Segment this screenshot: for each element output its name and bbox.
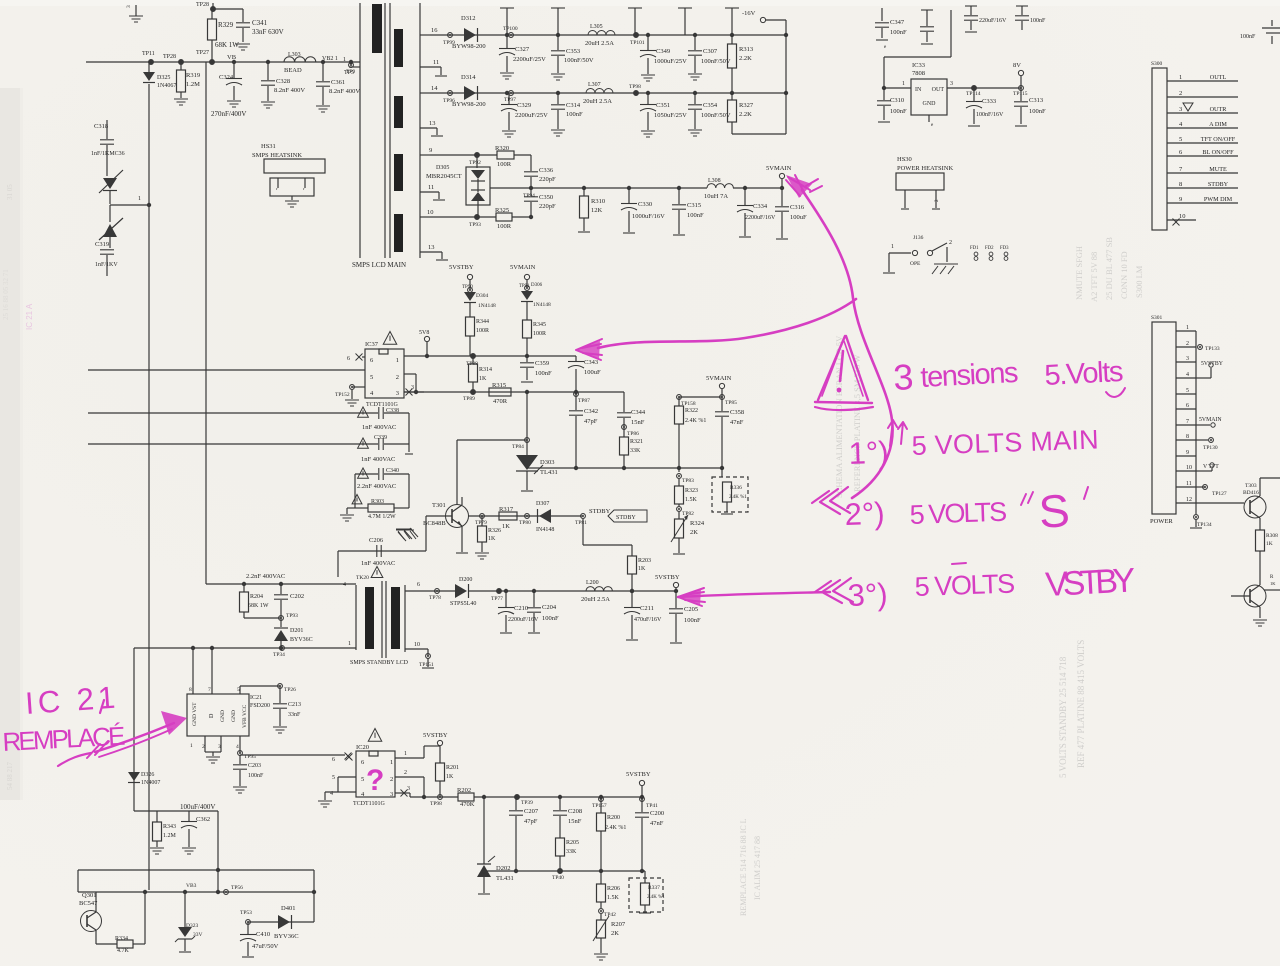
svg-text:100nF: 100nF xyxy=(1030,18,1046,24)
svg-text:12K: 12K xyxy=(591,207,603,214)
svg-text:1: 1 xyxy=(396,357,399,364)
svg-text:TP27: TP27 xyxy=(196,50,209,56)
svg-text:STDBY: STDBY xyxy=(589,508,611,515)
svg-text:100uF/400V: 100uF/400V xyxy=(180,803,215,811)
svg-text:SMPS STANDBY LCD: SMPS STANDBY LCD xyxy=(350,660,409,666)
svg-text:R308: R308 xyxy=(1266,533,1278,539)
svg-text:C313: C313 xyxy=(1029,97,1043,104)
svg-text:TL431: TL431 xyxy=(496,875,514,882)
svg-text:VB3: VB3 xyxy=(186,883,197,889)
svg-text:100R: 100R xyxy=(476,328,489,334)
svg-text:TP28: TP28 xyxy=(196,2,209,8)
svg-text:BC547: BC547 xyxy=(79,900,98,907)
svg-text:2: 2 xyxy=(396,374,399,381)
svg-text:10: 10 xyxy=(1179,213,1186,220)
svg-text:R315: R315 xyxy=(492,382,506,389)
svg-text:5: 5 xyxy=(332,775,335,781)
svg-text:VB: VB xyxy=(227,54,237,61)
svg-text:TP77: TP77 xyxy=(491,596,503,602)
svg-text:IC 21 A: IC 21 A xyxy=(25,303,34,330)
svg-text:6: 6 xyxy=(1186,403,1189,409)
svg-text:R337: R337 xyxy=(648,885,660,891)
svg-text:11: 11 xyxy=(1186,481,1192,487)
svg-text:S300 LM: S300 LM xyxy=(1134,265,1144,298)
svg-text:220uF/16V: 220uF/16V xyxy=(979,18,1007,24)
svg-text:2.4K %1: 2.4K %1 xyxy=(647,895,665,900)
svg-text:C359: C359 xyxy=(535,360,549,367)
svg-text:BEAD: BEAD xyxy=(284,67,302,74)
svg-text:R325: R325 xyxy=(495,207,509,214)
svg-text:16: 16 xyxy=(431,27,438,34)
svg-text:100nF/50V: 100nF/50V xyxy=(701,58,731,65)
svg-text:L307: L307 xyxy=(588,82,601,88)
svg-text:?: ? xyxy=(366,764,384,797)
svg-text:R310: R310 xyxy=(591,198,605,205)
svg-text:7: 7 xyxy=(1186,419,1189,425)
svg-text:1: 1 xyxy=(138,196,141,202)
svg-text:TP93: TP93 xyxy=(469,222,481,228)
svg-text:1.2M: 1.2M xyxy=(163,833,177,839)
svg-text:R319: R319 xyxy=(186,72,200,79)
svg-text:C343: C343 xyxy=(584,359,598,366)
svg-text:tensions: tensions xyxy=(920,357,1022,394)
svg-text:R345: R345 xyxy=(533,322,546,328)
svg-text:A DIM: A DIM xyxy=(1209,121,1227,128)
svg-text:8.2nF 400V: 8.2nF 400V xyxy=(274,87,305,94)
svg-text:TP40: TP40 xyxy=(552,875,564,881)
svg-text:3: 3 xyxy=(950,81,953,87)
svg-text:2K: 2K xyxy=(690,529,698,536)
svg-text:2.4K %1: 2.4K %1 xyxy=(729,495,747,500)
svg-text:2°): 2°) xyxy=(844,496,885,532)
svg-text:R204: R204 xyxy=(250,594,263,600)
svg-text:TP151: TP151 xyxy=(419,662,434,668)
svg-text:1N4007: 1N4007 xyxy=(141,780,160,786)
svg-text:1K: 1K xyxy=(1266,541,1273,547)
svg-text:R206: R206 xyxy=(607,886,620,892)
svg-text:3: 3 xyxy=(396,390,399,397)
svg-text:1: 1 xyxy=(404,751,407,757)
svg-text:31 05: 31 05 xyxy=(6,184,14,200)
svg-text:C329: C329 xyxy=(517,102,531,109)
svg-text:TP157: TP157 xyxy=(592,803,607,809)
svg-text:C202: C202 xyxy=(290,593,304,600)
svg-text:GND: GND xyxy=(231,710,237,722)
svg-text:C330: C330 xyxy=(638,201,652,208)
svg-text:TP89: TP89 xyxy=(463,396,475,402)
svg-text:TP83: TP83 xyxy=(682,478,694,484)
svg-text:C339: C339 xyxy=(374,435,387,441)
svg-text:C349: C349 xyxy=(656,48,670,55)
svg-text:TP101: TP101 xyxy=(630,40,645,46)
svg-text:5 VOLTS STANDBY 25 514 718: 5 VOLTS STANDBY 25 514 718 xyxy=(1058,656,1068,778)
svg-text:1nF 400VAC: 1nF 400VAC xyxy=(361,560,395,567)
svg-text:GND VST: GND VST xyxy=(192,702,198,726)
svg-text:TP91: TP91 xyxy=(519,284,530,289)
svg-text:BYW98-200: BYW98-200 xyxy=(452,43,486,50)
svg-text:C203: C203 xyxy=(248,763,261,769)
svg-text:4.7M 1/2W: 4.7M 1/2W xyxy=(368,514,396,520)
svg-text:BD416: BD416 xyxy=(1243,490,1259,496)
svg-text:7808: 7808 xyxy=(912,70,925,77)
svg-text:220pF: 220pF xyxy=(539,203,556,210)
svg-text:TL431: TL431 xyxy=(540,469,558,476)
svg-text:R313: R313 xyxy=(739,46,753,53)
svg-text:R201: R201 xyxy=(446,765,459,771)
svg-text:8: 8 xyxy=(189,687,192,693)
svg-text:C208: C208 xyxy=(568,808,582,815)
svg-text:C200: C200 xyxy=(650,810,664,817)
svg-text:1: 1 xyxy=(348,641,351,647)
svg-text:TP130: TP130 xyxy=(1203,445,1218,451)
svg-text:IC 21: IC 21 xyxy=(24,680,120,721)
svg-text:3: 3 xyxy=(390,791,393,798)
svg-text:100R: 100R xyxy=(533,331,546,337)
svg-text:CONN 10 FD: CONN 10 FD xyxy=(1119,251,1129,299)
svg-text:100nF: 100nF xyxy=(890,29,907,36)
svg-text:TP93: TP93 xyxy=(286,613,298,619)
svg-text:2200uF/25V: 2200uF/25V xyxy=(513,56,546,63)
svg-text:L200: L200 xyxy=(586,580,599,586)
svg-text:1N4067: 1N4067 xyxy=(157,83,176,89)
svg-text:C362: C362 xyxy=(196,816,210,823)
svg-text:6: 6 xyxy=(332,757,335,763)
svg-text:11: 11 xyxy=(428,184,434,191)
svg-text:FSD200: FSD200 xyxy=(250,703,270,709)
svg-text:4: 4 xyxy=(1186,372,1189,378)
svg-text:9: 9 xyxy=(429,147,432,154)
svg-text:1.5K: 1.5K xyxy=(685,497,698,503)
svg-text:13: 13 xyxy=(428,244,435,251)
svg-text:4: 4 xyxy=(330,791,333,797)
svg-text:1: 1 xyxy=(190,743,193,749)
svg-text:TP127: TP127 xyxy=(1212,491,1227,497)
svg-text:C340: C340 xyxy=(386,468,399,474)
svg-text:R203: R203 xyxy=(638,558,651,564)
svg-text:IC20: IC20 xyxy=(356,744,369,751)
svg-text:R334: R334 xyxy=(115,936,128,942)
svg-text:BC848B: BC848B xyxy=(423,520,446,527)
svg-text:5VSTBY: 5VSTBY xyxy=(655,574,680,581)
svg-text:L303: L303 xyxy=(288,52,301,58)
svg-text:D303: D303 xyxy=(540,459,554,466)
svg-text:33V: 33V xyxy=(193,932,203,938)
svg-text:1K: 1K xyxy=(502,523,510,530)
svg-text:D201: D201 xyxy=(290,628,303,634)
svg-text:C336: C336 xyxy=(539,167,554,174)
svg-text:TP78: TP78 xyxy=(429,595,441,601)
svg-text:TCDT1101G: TCDT1101G xyxy=(353,801,385,807)
svg-text:R207: R207 xyxy=(611,921,626,928)
svg-text:REMPLACE 514 716 88 IC L: REMPLACE 514 716 88 IC L xyxy=(739,818,748,916)
svg-text:C353: C353 xyxy=(566,48,580,55)
svg-text:4: 4 xyxy=(236,744,239,750)
svg-text:C213: C213 xyxy=(288,702,301,708)
svg-text:POWER HEATSINK: POWER HEATSINK xyxy=(897,165,953,172)
svg-text:4: 4 xyxy=(343,582,346,588)
svg-text:3: 3 xyxy=(407,786,410,792)
svg-text:C307: C307 xyxy=(703,48,718,55)
svg-text:2: 2 xyxy=(1179,90,1182,97)
svg-text:3: 3 xyxy=(1179,106,1182,113)
svg-text:100R: 100R xyxy=(497,223,512,230)
svg-text:1: 1 xyxy=(902,81,905,87)
svg-text:5VMAIN: 5VMAIN xyxy=(706,375,732,382)
svg-text:C315: C315 xyxy=(687,202,701,209)
svg-text:FD2: FD2 xyxy=(985,246,994,251)
svg-text:100uF: 100uF xyxy=(584,369,601,376)
svg-text:TP114: TP114 xyxy=(966,91,981,97)
svg-text:68K 1W: 68K 1W xyxy=(248,603,269,609)
svg-text:470uF/16V: 470uF/16V xyxy=(634,617,662,623)
svg-text:BYV36C: BYV36C xyxy=(274,933,299,940)
svg-text:R317: R317 xyxy=(499,506,514,513)
svg-text:1050uF/25V: 1050uF/25V xyxy=(654,112,687,119)
svg-text:R303: R303 xyxy=(371,499,384,505)
svg-text:TP97: TP97 xyxy=(504,97,516,103)
svg-text:14: 14 xyxy=(431,85,438,92)
svg-text:20uH 2.5A: 20uH 2.5A xyxy=(581,596,610,603)
svg-text:470R: 470R xyxy=(493,398,508,405)
svg-text:SMPS HEATSINK: SMPS HEATSINK xyxy=(252,152,302,159)
svg-text:TP39: TP39 xyxy=(521,800,533,806)
svg-text:D304: D304 xyxy=(476,293,488,299)
svg-text:100nF: 100nF xyxy=(890,108,907,115)
svg-text:OUT: OUT xyxy=(932,87,945,93)
svg-text:J136: J136 xyxy=(913,235,924,241)
svg-text:C319: C319 xyxy=(95,241,109,248)
svg-text:3: 3 xyxy=(892,356,914,398)
svg-text:R200: R200 xyxy=(607,815,620,821)
svg-text:IC21: IC21 xyxy=(250,695,262,701)
svg-text:C210: C210 xyxy=(514,605,528,612)
svg-text:1: 1 xyxy=(343,57,346,63)
svg-text:REF 477 PLATINE 88 415 VOLTS: REF 477 PLATINE 88 415 VOLTS xyxy=(1076,640,1086,768)
svg-text:5 VOLTS: 5 VOLTS xyxy=(909,497,1010,530)
svg-text:TP84: TP84 xyxy=(512,444,524,450)
svg-text:TP87: TP87 xyxy=(578,398,590,404)
svg-text:8V: 8V xyxy=(1013,62,1021,69)
svg-text:270nF/400V: 270nF/400V xyxy=(211,110,246,118)
svg-text:S300: S300 xyxy=(1151,61,1163,67)
svg-text:D323: D323 xyxy=(186,923,198,929)
svg-text:R205: R205 xyxy=(566,840,579,846)
svg-text:47nF: 47nF xyxy=(730,419,744,426)
svg-text:3: 3 xyxy=(1186,356,1189,362)
svg-text:2.2nF 400VAC: 2.2nF 400VAC xyxy=(246,573,285,580)
svg-text:C207: C207 xyxy=(524,808,539,815)
svg-text:C205: C205 xyxy=(684,606,698,613)
svg-text:100nF: 100nF xyxy=(535,370,552,377)
svg-text:3: 3 xyxy=(218,744,221,750)
svg-text:R321: R321 xyxy=(630,439,643,445)
svg-text:VB2 1: VB2 1 xyxy=(322,56,338,62)
svg-text:47pF: 47pF xyxy=(524,818,538,825)
svg-text:SMPS LCD MAIN: SMPS LCD MAIN xyxy=(352,261,406,269)
svg-text:R322: R322 xyxy=(685,408,698,414)
svg-text:VFB VCC: VFB VCC xyxy=(242,704,248,728)
svg-text:C341: C341 xyxy=(252,19,268,27)
svg-text:C211: C211 xyxy=(640,605,654,612)
svg-text:GND: GND xyxy=(220,710,226,722)
svg-text:TP86: TP86 xyxy=(627,431,639,437)
svg-text:C314: C314 xyxy=(566,102,581,109)
svg-text:1K: 1K xyxy=(638,566,646,572)
svg-text:GND: GND xyxy=(923,101,937,107)
svg-text:2.4K %1: 2.4K %1 xyxy=(685,418,706,424)
svg-text:15nF: 15nF xyxy=(631,419,645,426)
svg-text:2: 2 xyxy=(390,776,393,783)
svg-text:TP34: TP34 xyxy=(273,652,285,658)
svg-text:STDBY: STDBY xyxy=(616,515,636,521)
svg-text:TP98: TP98 xyxy=(629,84,641,90)
svg-text:1: 1 xyxy=(390,759,393,766)
svg-text:TP94: TP94 xyxy=(523,193,535,199)
svg-text:D325: D325 xyxy=(157,75,170,81)
svg-text:R326: R326 xyxy=(488,528,501,534)
svg-text:T303: T303 xyxy=(1245,483,1257,489)
svg-text:TP152: TP152 xyxy=(335,392,350,398)
svg-text:D312: D312 xyxy=(461,15,475,22)
svg-text:2: 2 xyxy=(1186,341,1189,347)
svg-text:TP9: TP9 xyxy=(346,69,355,75)
svg-text:C327: C327 xyxy=(515,46,530,53)
svg-text:100nF: 100nF xyxy=(1240,34,1256,40)
svg-text:C351: C351 xyxy=(656,102,670,109)
svg-text:6: 6 xyxy=(347,356,350,362)
svg-text:C328: C328 xyxy=(276,78,290,85)
svg-text:2: 2 xyxy=(949,240,952,246)
svg-text:5: 5 xyxy=(361,776,364,783)
svg-text:5VSTBY: 5VSTBY xyxy=(423,732,448,739)
svg-text:15nF: 15nF xyxy=(568,818,582,825)
svg-text:C350: C350 xyxy=(539,194,553,201)
svg-text:5VMAIN: 5VMAIN xyxy=(1199,417,1222,423)
svg-text:2.2nF 400VAC: 2.2nF 400VAC xyxy=(357,483,396,490)
svg-text:2K: 2K xyxy=(611,930,619,937)
svg-text:L308: L308 xyxy=(708,178,721,184)
svg-text:5 VOLTS: 5 VOLTS xyxy=(914,568,1018,602)
svg-text:TP133: TP133 xyxy=(1205,346,1220,352)
svg-text:1: 1 xyxy=(1186,325,1189,331)
svg-text:POWER: POWER xyxy=(1150,518,1173,525)
svg-text:5: 5 xyxy=(1186,388,1189,394)
svg-text:C316: C316 xyxy=(790,204,805,211)
svg-text:1K: 1K xyxy=(1270,581,1276,586)
svg-text:47pF: 47pF xyxy=(584,418,598,425)
svg-text:3°): 3°) xyxy=(847,577,888,613)
svg-text:TP134: TP134 xyxy=(1197,522,1212,528)
svg-text:470K: 470K xyxy=(460,801,475,808)
svg-text:47nF: 47nF xyxy=(650,820,664,827)
svg-text:1N4148: 1N4148 xyxy=(478,303,496,309)
svg-text:5VSTBY: 5VSTBY xyxy=(626,771,651,778)
svg-text:100nF: 100nF xyxy=(248,773,264,779)
svg-text:-16V: -16V xyxy=(742,10,756,17)
svg-text:1K: 1K xyxy=(488,536,496,542)
svg-text:IN4148: IN4148 xyxy=(536,527,554,533)
svg-text:TP42: TP42 xyxy=(604,912,616,918)
svg-text:1.5K: 1.5K xyxy=(607,895,620,901)
svg-text:1N4148: 1N4148 xyxy=(533,302,551,308)
svg-text:D306: D306 xyxy=(531,283,543,288)
svg-text:R336: R336 xyxy=(730,485,742,491)
svg-text:2.4K %1: 2.4K %1 xyxy=(605,825,626,831)
svg-text:TP81: TP81 xyxy=(575,520,587,526)
svg-text:TP41: TP41 xyxy=(646,803,658,809)
svg-text:TP56: TP56 xyxy=(231,885,243,891)
svg-text:TK20: TK20 xyxy=(356,575,369,581)
svg-text:47uF/50V: 47uF/50V xyxy=(252,943,279,950)
svg-text:33K: 33K xyxy=(630,448,641,454)
svg-text:1nF 400VAC: 1nF 400VAC xyxy=(362,424,396,431)
svg-text:33K: 33K xyxy=(566,849,577,855)
svg-text:1K: 1K xyxy=(479,376,487,382)
svg-text:C361: C361 xyxy=(331,79,345,86)
svg-text:TP28: TP28 xyxy=(163,54,176,60)
svg-text:13: 13 xyxy=(429,120,436,127)
svg-text:11: 11 xyxy=(433,59,439,66)
svg-text:IC ALIM 25 417 88: IC ALIM 25 417 88 xyxy=(753,836,762,900)
svg-text:TP115: TP115 xyxy=(1013,91,1028,97)
svg-text:10uH 7A: 10uH 7A xyxy=(704,193,728,200)
svg-text:100R: 100R xyxy=(497,161,512,168)
svg-text:R324: R324 xyxy=(690,520,705,527)
svg-text:T301: T301 xyxy=(432,502,446,509)
svg-text:OUTR: OUTR xyxy=(1210,106,1228,113)
svg-text:TP26: TP26 xyxy=(284,687,296,693)
svg-text:20uH 2.5A: 20uH 2.5A xyxy=(585,40,614,47)
svg-text:OUTL: OUTL xyxy=(1210,74,1227,81)
svg-text:R329: R329 xyxy=(218,21,234,29)
svg-text:NMUTE SFGH: NMUTE SFGH xyxy=(1074,246,1084,300)
svg-text:8.2nF 400V: 8.2nF 400V xyxy=(329,88,360,95)
svg-text:C358: C358 xyxy=(730,409,744,416)
svg-text:5VMAIN: 5VMAIN xyxy=(766,165,792,172)
svg-text:TP82: TP82 xyxy=(682,511,694,517)
svg-text:STDBY: STDBY xyxy=(1208,181,1229,188)
svg-text:D307: D307 xyxy=(536,501,549,507)
svg-text:100nF: 100nF xyxy=(542,615,559,622)
svg-text:D305: D305 xyxy=(436,165,449,171)
svg-text:C334: C334 xyxy=(753,203,768,210)
svg-text:3: 3 xyxy=(126,5,132,8)
svg-text:TFT ON/OFF: TFT ON/OFF xyxy=(1201,136,1236,143)
svg-text:C204: C204 xyxy=(542,604,557,611)
svg-text:C310: C310 xyxy=(890,97,904,104)
svg-text:7: 7 xyxy=(208,687,211,693)
svg-text:L305: L305 xyxy=(590,24,603,30)
svg-text:FD1: FD1 xyxy=(970,246,979,251)
svg-text:100uF: 100uF xyxy=(790,214,807,221)
svg-text:2: 2 xyxy=(404,770,407,776)
svg-text:12: 12 xyxy=(1186,497,1192,503)
svg-text:100nF/50V: 100nF/50V xyxy=(701,112,731,119)
svg-text:BYW98-200: BYW98-200 xyxy=(452,101,486,108)
svg-text:D314: D314 xyxy=(461,74,476,81)
svg-text:TP100: TP100 xyxy=(503,26,518,32)
svg-text:R323: R323 xyxy=(685,488,698,494)
svg-text:2: 2 xyxy=(202,744,205,750)
svg-text:TP53: TP53 xyxy=(240,910,252,916)
svg-text:OPE: OPE xyxy=(910,261,921,267)
svg-text:C318: C318 xyxy=(94,123,108,130)
svg-text:TP98: TP98 xyxy=(430,801,442,807)
svg-text:2.2K: 2.2K xyxy=(739,111,752,118)
svg-text:R202: R202 xyxy=(457,787,471,794)
svg-text:25 DU BL 477 SB: 25 DU BL 477 SB xyxy=(1104,237,1114,300)
svg-text:5: 5 xyxy=(1179,136,1182,143)
